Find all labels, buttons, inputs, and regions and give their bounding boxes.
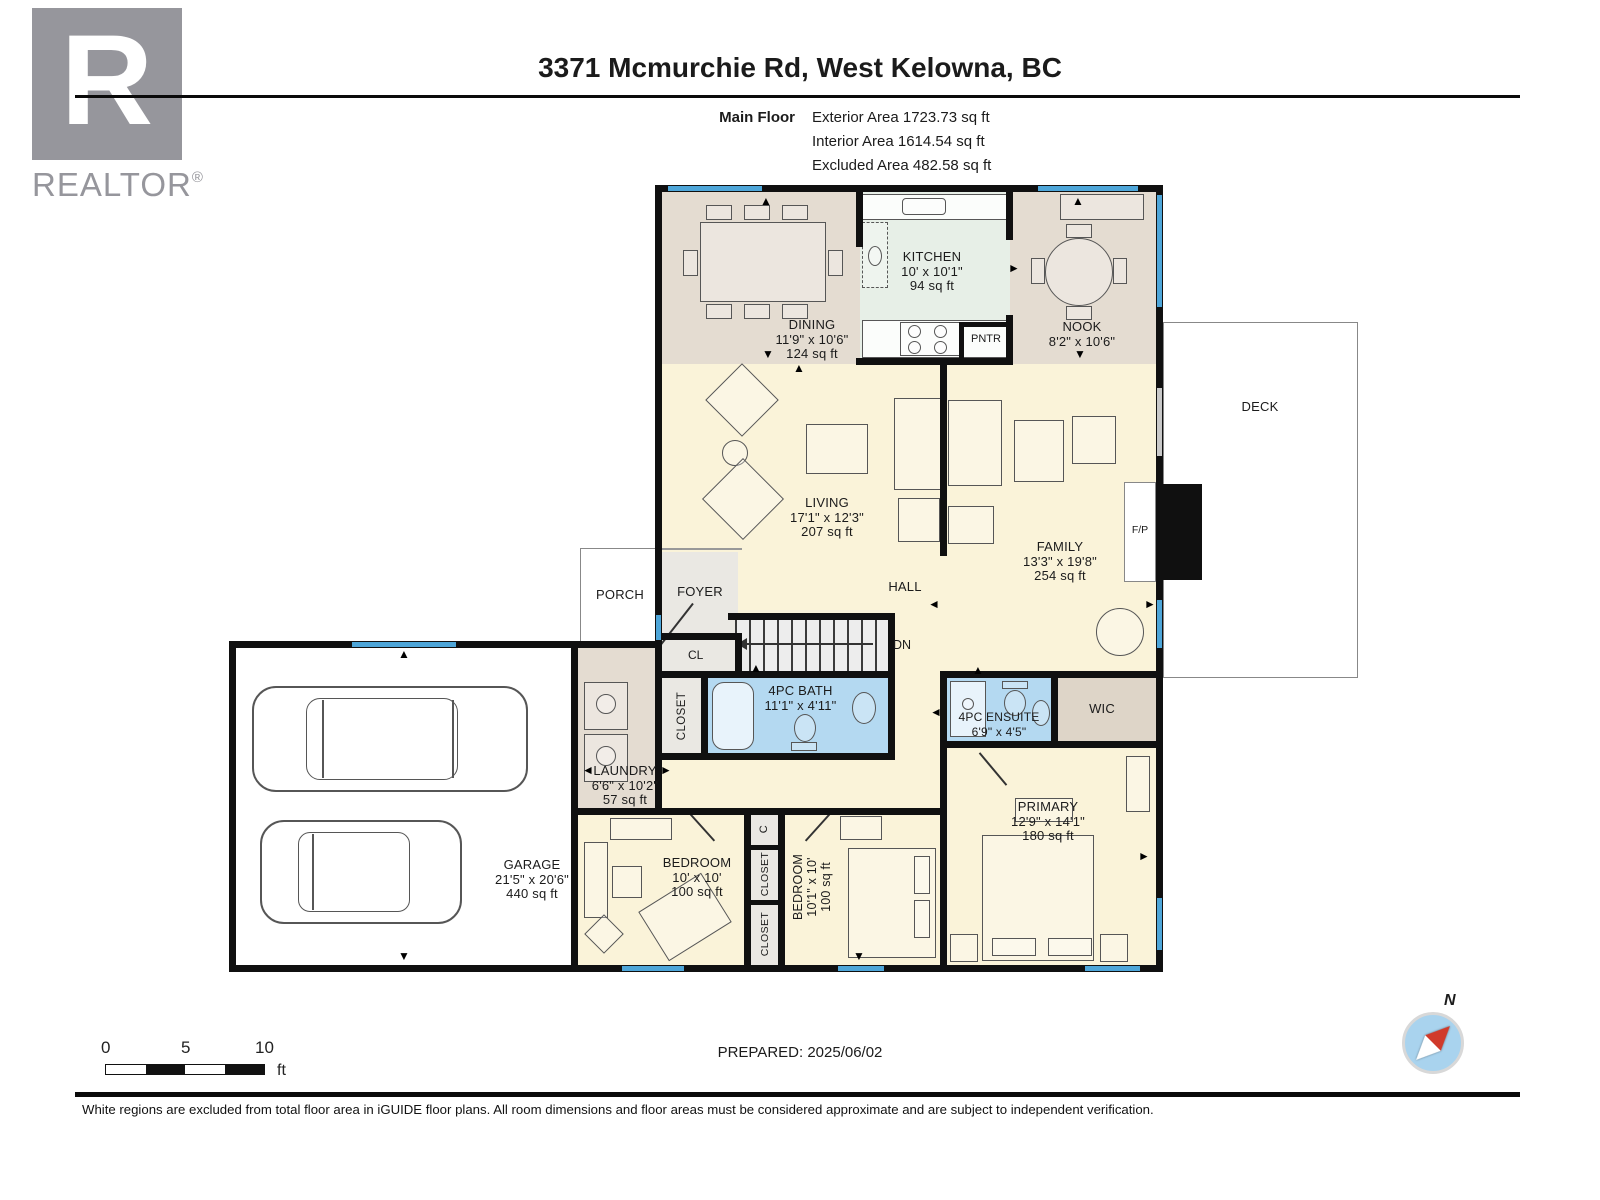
room-dims: 10' x 10': [627, 871, 767, 886]
scale-bar-segment: [185, 1065, 225, 1074]
window: [668, 186, 762, 191]
door-arrow-icon: ▼: [1074, 348, 1086, 360]
wall-segment: [778, 808, 785, 972]
room-label-family: FAMILY 13'3" x 19'8" 254 sq ft: [990, 540, 1130, 584]
wall-segment: [571, 808, 947, 815]
pillow: [914, 900, 930, 938]
door-arrow-icon: ►: [1008, 262, 1020, 274]
patio-door: [1157, 388, 1162, 456]
scale-bar-segment: [146, 1065, 186, 1074]
toilet-tank: [791, 742, 817, 751]
kitchen-sink: [902, 198, 946, 215]
wall-segment: [701, 671, 708, 760]
stat-interior-area: Interior Area 1614.54 sq ft: [812, 133, 985, 150]
prepared-date: PREPARED: 2025/06/02: [600, 1044, 1000, 1061]
room-label-wic: WIC: [1032, 702, 1172, 717]
room-area: 254 sq ft: [990, 569, 1130, 584]
room-dims: 10' x 10'1": [862, 265, 1002, 280]
room-name: HALL: [835, 580, 975, 595]
toilet-tank: [1002, 681, 1028, 689]
washer-door-icon: [596, 694, 616, 714]
wall-segment: [662, 633, 735, 640]
pillow: [1048, 938, 1092, 956]
side-table: [1072, 416, 1116, 464]
realtor-logo-text: REALTOR: [32, 166, 192, 203]
window: [1038, 186, 1138, 191]
stat-exterior-area: Exterior Area 1723.73 sq ft: [812, 109, 990, 126]
title-divider: [75, 95, 1520, 98]
room-name: KITCHEN: [862, 250, 1002, 265]
door-arrow-icon: ◄: [930, 706, 942, 718]
fireplace-box: [1156, 484, 1202, 580]
room-label-living: LIVING 17'1" x 12'3" 207 sq ft: [757, 496, 897, 540]
room-name: DECK: [1190, 400, 1330, 415]
room-dims: 11'1" x 4'11": [728, 699, 873, 714]
burner-icon: [934, 325, 947, 338]
room-label-nook: NOOK 8'2" x 10'6": [1012, 320, 1152, 349]
room-name: 4PC BATH: [728, 684, 873, 699]
stat-excluded-area: Excluded Area 482.58 sq ft: [812, 157, 991, 174]
stair-arrow-line: [745, 643, 873, 645]
room-dims: 12'9" x 14'1": [978, 815, 1118, 830]
pillow: [992, 938, 1036, 956]
scale-bar: [105, 1064, 265, 1075]
realtor-logo-letter: R: [61, 17, 153, 145]
door-arrow-icon: ▼: [853, 950, 865, 962]
door-arrow-icon: ►: [1138, 850, 1150, 862]
wall-segment: [229, 965, 1163, 972]
wall-segment: [888, 671, 895, 760]
compass-north-label: N: [1444, 992, 1456, 1010]
realtor-logo-icon: R: [32, 8, 182, 160]
room-label-bedroom2: BEDROOM 10'1" x 10' 100 sq ft: [791, 827, 833, 947]
room-area: 180 sq ft: [978, 829, 1118, 844]
burner-icon: [908, 325, 921, 338]
page-title: 3371 Mcmurchie Rd, West Kelowna, BC: [400, 52, 1200, 84]
registered-mark: ®: [192, 169, 204, 186]
wall-segment: [959, 322, 1013, 327]
room-label-foyer: FOYER: [630, 585, 770, 600]
scale-unit: ft: [277, 1062, 286, 1080]
stairs-down-label: DN: [893, 638, 911, 652]
bath-closet-label: CLOSET: [676, 681, 688, 751]
chair: [1066, 224, 1092, 238]
room-label-bath: 4PC BATH 11'1" x 4'11": [728, 684, 873, 713]
realtor-logo-word: REALTOR®: [32, 166, 204, 204]
footer-divider: [75, 1092, 1520, 1097]
wall-segment: [728, 613, 895, 620]
small-closet-label: C: [758, 819, 770, 839]
scale-tick-0: 0: [101, 1038, 110, 1058]
room-name: PRIMARY: [978, 800, 1118, 815]
room-name: DINING: [742, 318, 882, 333]
chair: [828, 250, 843, 276]
room-dims: 11'9" x 10'6": [742, 333, 882, 348]
room-label-primary: PRIMARY 12'9" x 14'1" 180 sq ft: [978, 800, 1118, 844]
room-name: BEDROOM: [627, 856, 767, 871]
room-name: NOOK: [1012, 320, 1152, 335]
pillow: [914, 856, 930, 894]
window: [622, 966, 684, 971]
room-dims: 6'9" x 4'5": [924, 725, 1074, 740]
room-name: FAMILY: [990, 540, 1130, 555]
toilet-bowl: [794, 714, 816, 742]
armchair: [1014, 420, 1064, 482]
burner-icon: [934, 341, 947, 354]
nook-table: [1045, 238, 1113, 306]
window: [838, 966, 884, 971]
chair: [706, 205, 732, 220]
door-arrow-icon: ▲: [972, 664, 984, 676]
chair: [683, 250, 698, 276]
room-name: WIC: [1032, 702, 1172, 717]
scale-bar-segment: [106, 1065, 146, 1074]
hall-closet-label: CL: [688, 648, 703, 662]
window: [1157, 195, 1162, 307]
room-name: LIVING: [757, 496, 897, 511]
room-label-garage: GARAGE 21'5" x 20'6" 440 sq ft: [462, 858, 602, 902]
window: [1157, 898, 1162, 950]
room-dims: 10'1" x 10': [805, 827, 819, 947]
chair: [1031, 258, 1045, 284]
chair: [1113, 258, 1127, 284]
room-area: 440 sq ft: [462, 887, 602, 902]
car-windshield-line: [322, 700, 324, 778]
dresser: [1126, 756, 1150, 812]
door-arrow-icon: ◄: [928, 598, 940, 610]
wall-segment: [856, 185, 863, 247]
door-arrow-icon: ◄: [582, 764, 594, 776]
floorplan-page: R REALTOR® 3371 Mcmurchie Rd, West Kelow…: [0, 0, 1600, 1200]
pantry-label: PNTR: [961, 333, 1011, 345]
door-arrow-icon: ▲: [750, 662, 762, 674]
door-arrow-icon: ▲: [760, 195, 772, 207]
room-label-hall: HALL: [835, 580, 975, 595]
door-arrow-icon: ▲: [793, 362, 805, 374]
ottoman: [898, 498, 940, 542]
ottoman: [948, 506, 994, 544]
round-chair: [1096, 608, 1144, 656]
room-name: FOYER: [630, 585, 770, 600]
wall-segment: [940, 364, 947, 556]
room-area: 94 sq ft: [862, 279, 1002, 294]
wall-segment: [655, 671, 895, 678]
scale-bar-segment: [225, 1065, 265, 1074]
room-name: BEDROOM: [791, 827, 805, 947]
car-cabin: [298, 832, 410, 912]
sofa: [806, 424, 868, 474]
room-label-kitchen: KITCHEN 10' x 10'1" 94 sq ft: [862, 250, 1002, 294]
hall-floor-b: [662, 760, 940, 808]
foyer-threshold: [662, 548, 742, 550]
footer-disclaimer: White regions are excluded from total fl…: [82, 1102, 1382, 1117]
car-windshield-line: [452, 700, 454, 778]
sectional-sofa: [894, 398, 944, 490]
room-dims: 6'6" x 10'2": [555, 779, 695, 794]
sectional-sofa: [948, 400, 1002, 486]
wall-segment: [940, 741, 1163, 748]
room-area: 207 sq ft: [757, 525, 897, 540]
room-name: LAUNDRY: [555, 764, 695, 779]
room-dims: 17'1" x 12'3": [757, 511, 897, 526]
chair: [706, 304, 732, 319]
door-arrow-icon: ▼: [398, 950, 410, 962]
door-arrow-icon: ►: [660, 764, 672, 776]
room-dims: 21'5" x 20'6": [462, 873, 602, 888]
burner-icon: [908, 341, 921, 354]
room-area: 100 sq ft: [819, 827, 833, 947]
window: [656, 615, 661, 640]
nightstand: [1100, 934, 1128, 962]
car-windshield-line: [312, 834, 314, 910]
door-arrow-icon: ▲: [398, 648, 410, 660]
wall-segment: [655, 545, 662, 760]
nightstand: [950, 934, 978, 962]
scale-tick-10: 10: [255, 1038, 274, 1058]
room-label-deck: DECK: [1190, 400, 1330, 415]
chair: [744, 304, 770, 319]
room-name: GARAGE: [462, 858, 602, 873]
wall-segment: [655, 185, 662, 555]
room-area: 100 sq ft: [627, 885, 767, 900]
dresser: [610, 818, 672, 840]
wall-segment: [655, 753, 895, 760]
wall-segment: [571, 641, 662, 648]
car-cabin: [306, 698, 458, 780]
closet-b-label: CLOSET: [759, 899, 771, 969]
window: [1085, 966, 1140, 971]
room-area: 57 sq ft: [555, 793, 695, 808]
window: [1157, 600, 1162, 648]
wall-segment: [1006, 185, 1013, 240]
room-dims: 13'3" x 19'8": [990, 555, 1130, 570]
wall-segment: [229, 641, 236, 972]
door-arrow-icon: ▲: [1072, 195, 1084, 207]
door-arrow-icon: ▼: [762, 348, 774, 360]
floor-label: Main Floor: [600, 109, 795, 126]
chair: [1066, 306, 1092, 320]
room-label-bedroom1: BEDROOM 10' x 10' 100 sq ft: [627, 856, 767, 900]
fireplace-label: F/P: [1124, 524, 1156, 536]
shower-drain-icon: [962, 698, 974, 710]
room-label-laundry: LAUNDRY 6'6" x 10'2" 57 sq ft: [555, 764, 695, 808]
door-arrow-icon: ►: [1144, 598, 1156, 610]
chair: [782, 205, 808, 220]
nightstand: [840, 816, 882, 840]
dining-table: [700, 222, 826, 302]
scale-tick-5: 5: [181, 1038, 190, 1058]
